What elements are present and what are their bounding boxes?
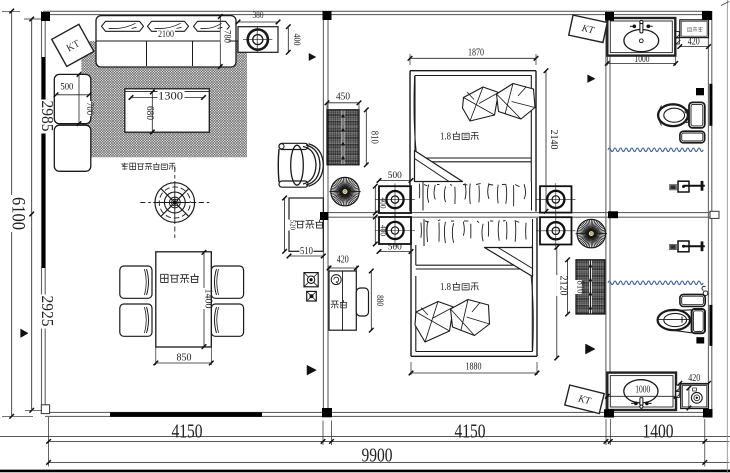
svg-text:4150: 4150 xyxy=(172,420,203,442)
svg-text:850: 850 xyxy=(177,352,192,364)
svg-text:420: 420 xyxy=(337,254,349,265)
svg-text:2100: 2100 xyxy=(158,30,174,40)
svg-text:420: 420 xyxy=(688,37,700,48)
svg-text:420: 420 xyxy=(688,373,700,384)
svg-text:9900: 9900 xyxy=(362,445,393,467)
svg-text:510: 510 xyxy=(300,246,313,257)
svg-text:1000: 1000 xyxy=(635,384,650,395)
svg-text:2925: 2925 xyxy=(38,296,57,327)
svg-text:6100: 6100 xyxy=(8,197,29,230)
svg-text:500: 500 xyxy=(388,243,402,253)
svg-text:2985: 2985 xyxy=(38,101,57,132)
svg-text:400: 400 xyxy=(379,198,389,209)
svg-text:700: 700 xyxy=(84,102,94,115)
svg-text:810: 810 xyxy=(368,131,379,144)
svg-text:400: 400 xyxy=(291,34,301,46)
svg-text:380: 380 xyxy=(253,11,264,21)
svg-text:1.8: 1.8 xyxy=(440,132,451,143)
svg-text:4150: 4150 xyxy=(455,420,486,442)
svg-text:500: 500 xyxy=(388,171,402,181)
svg-text:1400: 1400 xyxy=(643,420,674,442)
svg-text:680: 680 xyxy=(144,106,155,120)
svg-text:1300: 1300 xyxy=(158,88,183,102)
svg-text:1.8: 1.8 xyxy=(440,282,451,293)
svg-text:450: 450 xyxy=(336,92,350,103)
svg-text:780: 780 xyxy=(222,30,232,43)
svg-text:2140: 2140 xyxy=(548,130,559,150)
svg-text:400: 400 xyxy=(379,225,389,236)
svg-text:810: 810 xyxy=(575,281,586,294)
svg-text:1870: 1870 xyxy=(468,47,484,59)
svg-text:1880: 1880 xyxy=(466,361,482,373)
svg-text:1400: 1400 xyxy=(202,289,213,309)
svg-text:880: 880 xyxy=(374,295,384,306)
svg-text:2120: 2120 xyxy=(558,276,569,296)
svg-text:520: 520 xyxy=(289,220,297,230)
svg-text:1000: 1000 xyxy=(635,54,650,65)
svg-text:500: 500 xyxy=(60,83,73,93)
